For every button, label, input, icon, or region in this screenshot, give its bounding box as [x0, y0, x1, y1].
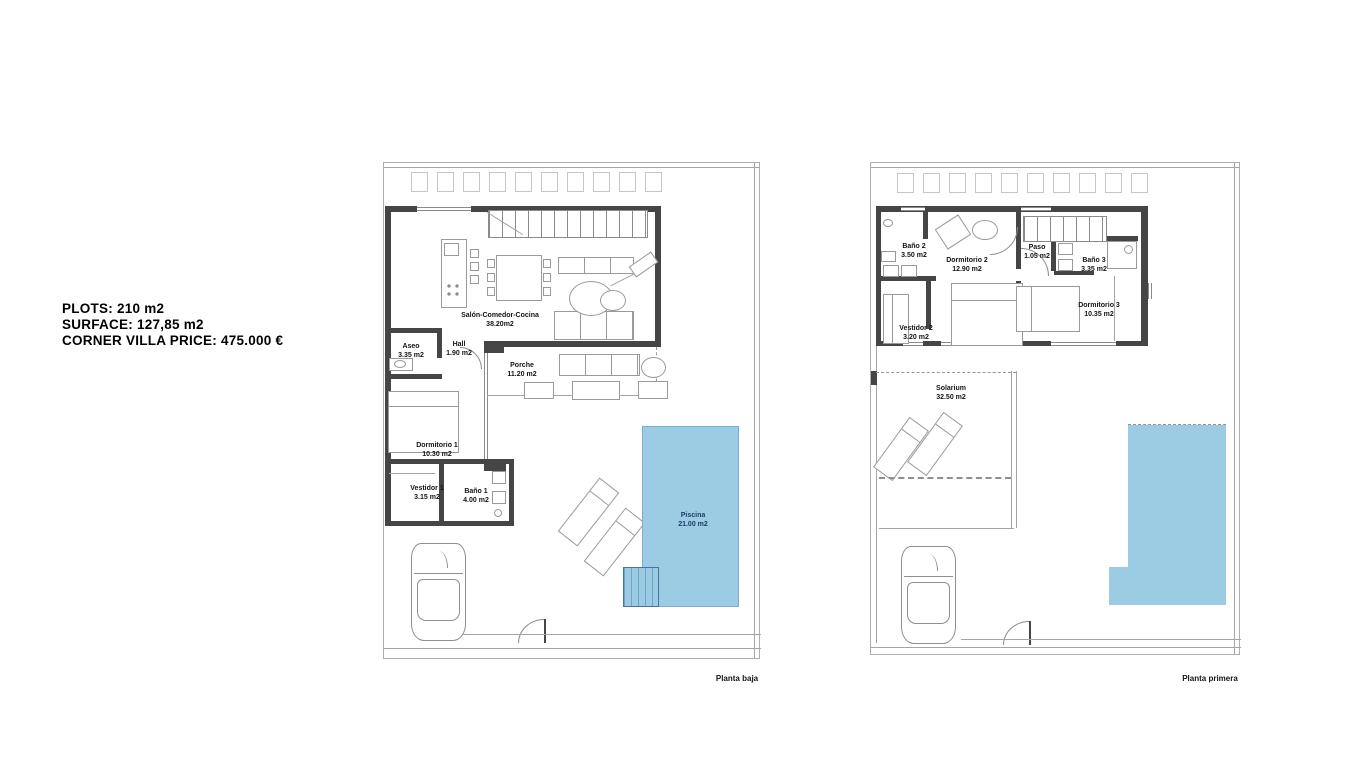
wall	[385, 521, 514, 526]
room-label-solarium: Solarium32.50 m2	[936, 384, 966, 403]
chair	[543, 273, 551, 282]
pergola-beam	[923, 173, 940, 193]
car-cabin	[417, 579, 460, 621]
dining-table	[496, 255, 542, 301]
pergola-beam	[489, 172, 506, 192]
pergola-row	[897, 173, 1148, 193]
chaise	[629, 251, 659, 277]
sink	[901, 265, 917, 277]
shelf	[881, 251, 896, 262]
pergola-beam	[515, 172, 532, 192]
wall	[923, 211, 928, 239]
sink-basin	[394, 360, 406, 368]
desk	[935, 214, 972, 249]
room-label-vestidor-2: Vestidor 23.20 m2	[899, 324, 932, 343]
pergola-beam	[1001, 173, 1018, 193]
floorplan-first: Baño 23.50 m2 Dormitorio 212.90 m2 Paso1…	[870, 162, 1240, 655]
room-label-bano-3: Baño 33.35 m2	[1081, 256, 1107, 275]
caption-planta-baja: Planta baja	[716, 674, 758, 683]
sofa	[558, 257, 634, 274]
pergola-beam	[593, 172, 610, 192]
railing	[879, 477, 1011, 479]
chair	[487, 259, 495, 268]
closet	[389, 473, 435, 474]
window	[901, 207, 925, 211]
outdoor-table	[641, 357, 666, 378]
outdoor-table	[572, 381, 620, 400]
solarium-boundary	[879, 528, 1014, 529]
glass-wall	[484, 353, 488, 461]
walkway-line	[871, 647, 1241, 648]
wall	[655, 206, 661, 346]
room-label-bano-2: Baño 23.50 m2	[901, 242, 927, 261]
pergola-beam	[411, 172, 428, 192]
room-label-aseo: Aseo3.35 m2	[398, 342, 424, 361]
bed-pillow-line	[1031, 287, 1032, 331]
sink	[1058, 243, 1073, 255]
wall	[1116, 341, 1148, 346]
pergola-beam	[463, 172, 480, 192]
walkway-line	[384, 648, 761, 649]
sink	[883, 265, 899, 277]
solarium-boundary	[876, 372, 1016, 373]
car-line	[414, 573, 463, 574]
wall	[871, 371, 877, 385]
caption-planta-primera: Planta primera	[1182, 674, 1238, 683]
car-cabin	[907, 582, 950, 624]
chair	[543, 259, 551, 268]
toilet	[883, 219, 893, 227]
room-label-hall: Hall1.90 m2	[446, 340, 472, 359]
room-label-dormitorio-1: Dormitorio 110.30 m2	[416, 441, 458, 460]
wall	[385, 374, 442, 379]
plot-boundary	[754, 163, 755, 658]
gate-leaf	[1029, 621, 1031, 645]
room-label-salon: Salón-Comedor-Cocina38.20m2	[461, 311, 539, 330]
pergola-beam	[437, 172, 454, 192]
surface-line: SURFACE: 127,85 m2	[62, 317, 283, 333]
wall	[390, 206, 417, 212]
pergola-beam	[949, 173, 966, 193]
wall	[437, 328, 442, 358]
outdoor-sofa	[559, 354, 640, 376]
pergola-beam	[619, 172, 636, 192]
gate-door-arc	[518, 619, 544, 643]
room-label-vestidor-1: Vestidor 13.15 m2	[410, 484, 443, 503]
bed	[951, 283, 1023, 346]
room-label-paso: Paso1.05 m2	[1024, 243, 1050, 262]
pergola-beam	[1131, 173, 1148, 193]
room-label-piscina: Piscina21.00 m2	[678, 511, 708, 530]
wall	[1051, 241, 1056, 271]
floorplan-sheet: PLOTS: 210 m2 SURFACE: 127,85 m2 CORNER …	[0, 0, 1366, 768]
floorplan-ground: Aseo3.35 m2 Hall1.90 m2 Salón-Comedor-Co…	[383, 162, 760, 659]
room-label-dormitorio-2: Dormitorio 212.90 m2	[946, 256, 988, 275]
stool	[470, 275, 479, 284]
swimming-pool	[1109, 567, 1129, 605]
swimming-pool	[1128, 425, 1226, 605]
sink	[492, 491, 506, 504]
chair	[487, 273, 495, 282]
stool	[470, 262, 479, 271]
windshield-line	[439, 551, 448, 568]
gate-leaf	[544, 619, 546, 643]
window	[1021, 207, 1051, 211]
pergola-beam	[975, 173, 992, 193]
pergola-beam	[897, 173, 914, 193]
pool-edge	[1128, 424, 1226, 425]
price-line: CORNER VILLA PRICE: 475.000 €	[62, 333, 283, 349]
room-label-dormitorio-3: Dormitorio 310.35 m2	[1078, 301, 1120, 320]
pergola-beam	[1053, 173, 1070, 193]
kitchen-sink	[444, 243, 459, 256]
plot-boundary	[384, 167, 759, 168]
wall	[1141, 206, 1148, 346]
plots-line: PLOTS: 210 m2	[62, 301, 283, 317]
pergola-beam	[541, 172, 558, 192]
windshield-line	[929, 554, 938, 571]
shower	[1107, 241, 1137, 269]
side-table	[600, 290, 626, 311]
chair	[543, 287, 551, 296]
room-label-bano-1: Baño 14.00 m2	[463, 487, 489, 506]
bed	[1016, 286, 1080, 332]
pergola-beam	[567, 172, 584, 192]
solarium-boundary	[1016, 371, 1017, 528]
pool-steps	[623, 567, 659, 607]
cooktop	[445, 282, 462, 299]
staircase	[488, 210, 648, 238]
shower-drain	[1124, 245, 1133, 254]
staircase	[1023, 216, 1107, 242]
sink	[492, 471, 506, 484]
car-line	[904, 576, 953, 577]
solarium-boundary	[1011, 371, 1012, 528]
wall	[484, 341, 504, 353]
closet-line	[892, 295, 893, 343]
walkway-line	[463, 634, 761, 635]
plot-boundary	[871, 167, 1239, 168]
wall	[385, 328, 442, 333]
pergola-row	[411, 172, 662, 192]
plot-boundary	[876, 346, 877, 643]
gate-door-arc	[1003, 621, 1029, 645]
wall	[499, 341, 661, 347]
sink	[1058, 259, 1073, 271]
bed-pillow-line	[952, 300, 1022, 301]
window	[417, 207, 471, 211]
bed-pillow-line	[389, 406, 458, 407]
chair	[487, 287, 495, 296]
stool	[470, 249, 479, 258]
outdoor-chair	[524, 382, 554, 399]
window	[1051, 342, 1116, 346]
plot-boundary	[1234, 163, 1235, 654]
car	[411, 543, 466, 641]
pergola-beam	[645, 172, 662, 192]
wall	[926, 281, 931, 329]
car	[901, 546, 956, 644]
walkway-line	[961, 639, 1241, 640]
room-label-porche: Porche11.20 m2	[507, 361, 536, 380]
outdoor-chair	[638, 381, 668, 399]
listing-info: PLOTS: 210 m2 SURFACE: 127,85 m2 CORNER …	[62, 301, 283, 348]
window	[1148, 283, 1152, 299]
pergola-beam	[1027, 173, 1044, 193]
toilet	[494, 509, 502, 517]
door-arc	[990, 227, 1018, 255]
pergola-beam	[1079, 173, 1096, 193]
wall	[509, 464, 514, 526]
pergola-beam	[1105, 173, 1122, 193]
